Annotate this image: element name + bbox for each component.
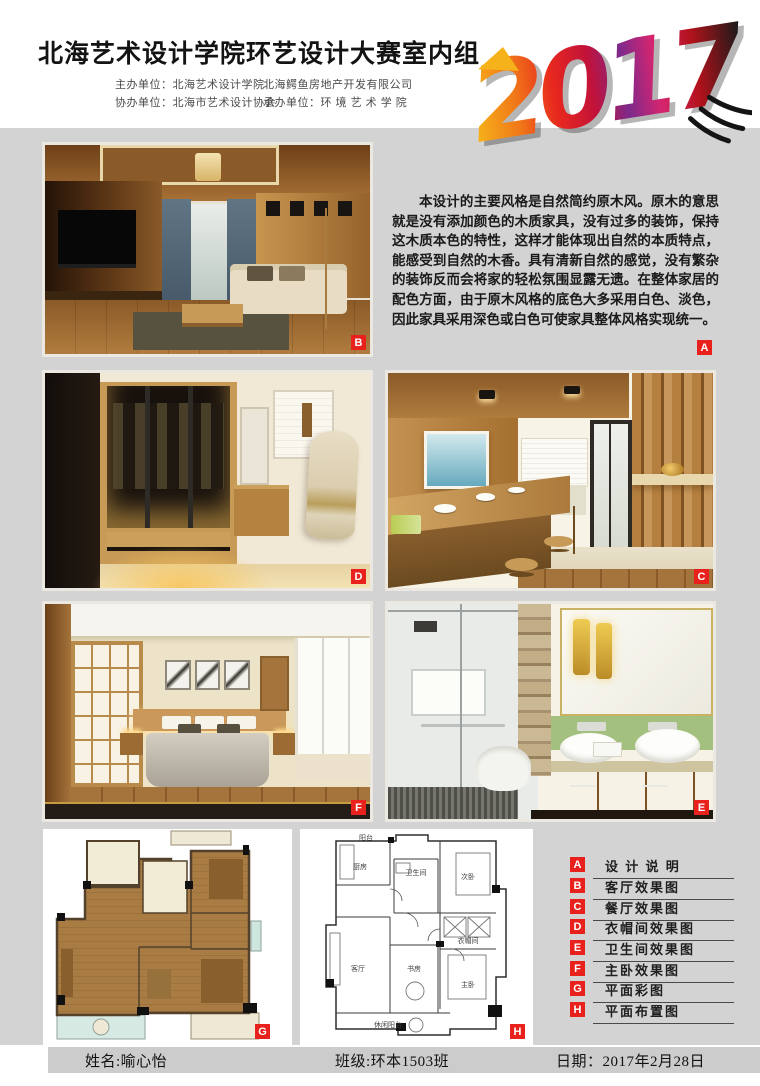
legend-row-g: G 平面彩图 — [570, 980, 734, 1000]
vanity-cabinet — [234, 485, 289, 537]
vessel-sink — [635, 729, 700, 763]
legend-row-b: B 客厅效果图 — [570, 877, 734, 897]
wood-floor-strip — [518, 569, 713, 588]
label-leisure-balcony: 休闲阳台 — [374, 1020, 402, 1029]
label-living-room: 客厅 — [351, 964, 365, 973]
faucet — [577, 722, 606, 731]
legend-badge-b: B — [570, 878, 585, 893]
legend-row-a: A 设 计 说 明 — [570, 856, 734, 876]
spotlight — [479, 390, 495, 399]
kitchen — [87, 841, 139, 885]
shower-head — [414, 621, 437, 632]
bedroom-photo: F — [42, 601, 373, 822]
floor-lamp — [325, 208, 327, 329]
legend-label-a: 设 计 说 明 — [593, 856, 734, 879]
bathroom — [143, 861, 187, 913]
shower-tile-floor — [388, 787, 518, 819]
legend-badge-e: E — [570, 940, 585, 955]
cup — [434, 504, 457, 513]
student-name: 姓名:喻心怡 — [85, 1050, 167, 1071]
cushion — [279, 266, 305, 281]
label-cloakroom: 衣帽间 — [458, 936, 479, 945]
cabinet-handle — [570, 785, 596, 787]
organizer-developer: 北海鳄鱼房地产开发有限公司 — [263, 76, 413, 92]
organizer-coorganizer: 协办单位：北海市艺术设计协会 — [115, 94, 263, 110]
year-2017-logo: 2017 2017 — [452, 14, 752, 154]
badge-a: A — [697, 340, 712, 355]
cushion — [247, 266, 273, 281]
chair-leg — [573, 506, 575, 553]
bed — [146, 733, 270, 787]
tub — [93, 1019, 109, 1035]
legend-badge-f: F — [570, 961, 585, 976]
badge-g: G — [255, 1024, 270, 1039]
tv-screen — [58, 210, 136, 268]
balcony-top-right — [171, 831, 231, 845]
window-seat — [295, 755, 370, 781]
counter-top — [551, 761, 714, 772]
legend-row-h: H 平面布置图 — [570, 1001, 734, 1021]
nightstand — [273, 733, 296, 755]
cloakroom-photo: D — [42, 370, 373, 591]
legend-label-b: 客厅效果图 — [593, 877, 734, 900]
legend-row-c: C 餐厅效果图 — [570, 898, 734, 918]
photo-frames — [266, 201, 357, 216]
stone-column — [518, 604, 551, 776]
wood-niche — [260, 656, 289, 712]
balcony-bottom-right — [191, 1013, 259, 1039]
layout-floor-plan-svg: 阳台 厨房 卫生间 次卧 衣帽间 主卧 客厅 书房 休闲阳台 — [300, 829, 533, 1045]
organizer-undertaker: 承办单位：环 境 艺 术 学 院 — [263, 94, 407, 110]
wood-cabinet-edge — [45, 604, 71, 819]
class-name: 班级:环本1503班 — [335, 1050, 449, 1071]
curtain-left — [162, 199, 191, 304]
label-study: 书房 — [407, 964, 421, 973]
legend-label-h: 平面布置图 — [593, 1001, 734, 1024]
nightstand — [120, 733, 143, 755]
legend-badge-d: D — [570, 919, 585, 934]
desk — [147, 969, 171, 999]
under-light-glow — [91, 545, 273, 588]
bed-secondary — [209, 859, 243, 899]
date: 日期：2017年2月28日 — [556, 1050, 705, 1071]
label-bathroom: 卫生间 — [406, 868, 427, 877]
toilet — [476, 746, 531, 791]
cabinet-handle — [642, 785, 668, 787]
bathroom-photo: E — [385, 601, 716, 822]
towel — [593, 742, 622, 757]
blue-artwork — [424, 431, 489, 489]
layout-floor-plan: 阳台 厨房 卫生间 次卧 衣帽间 主卧 客厅 书房 休闲阳台 H — [300, 829, 533, 1045]
design-description: 本设计的主要风格是自然简约原木风。原木的意思就是没有添加颜色的木质家具，没有过多… — [392, 192, 719, 329]
label-master-bedroom: 主卧 — [461, 980, 475, 989]
pendant-light — [596, 623, 612, 679]
coffee-table — [182, 304, 244, 327]
dining-room-photo: C — [385, 370, 716, 591]
bed-master — [201, 959, 243, 1003]
label-kitchen: 厨房 — [353, 862, 367, 871]
badge-b: B — [351, 335, 366, 350]
legend-row-e: E 卫生间效果图 — [570, 939, 734, 959]
mirror — [240, 407, 269, 484]
platform-base — [45, 802, 370, 819]
organizer-host: 主办单位：北海艺术设计学院 — [115, 76, 263, 92]
bay-window — [295, 638, 373, 754]
legend-row-d: D 衣帽间效果图 — [570, 918, 734, 938]
gold-kettle — [661, 463, 684, 476]
organizer-row-2: 协办单位：北海市艺术设计协会 承办单位：环 境 艺 术 学 院 — [115, 94, 407, 110]
coat-hook — [302, 403, 312, 437]
legend-badge-h: H — [570, 1002, 585, 1017]
side-window — [251, 921, 261, 951]
cup — [476, 493, 496, 501]
door-mullion — [609, 420, 611, 558]
ceiling-recess — [100, 145, 279, 185]
legend-badge-a: A — [570, 857, 585, 872]
legend-label-g: 平面彩图 — [593, 980, 734, 1003]
footer-bar: 姓名:喻心怡 班级:环本1503班 日期：2017年2月28日 — [48, 1047, 760, 1073]
living-room-photo: B — [42, 142, 373, 357]
page-title: 北海艺术设计学院环艺设计大赛室内组 — [38, 34, 480, 70]
glass-frame — [388, 610, 538, 612]
legend-badge-g: G — [570, 981, 585, 996]
ceiling — [45, 604, 370, 636]
poster-page: 北海艺术设计学院环艺设计大赛室内组 主办单位：北海艺术设计学院 北海鳄鱼房地产开… — [0, 0, 760, 1086]
legend-label-d: 衣帽间效果图 — [593, 918, 734, 941]
triptych-art — [165, 660, 250, 690]
label-balcony: 阳台 — [359, 833, 373, 842]
badge-e: E — [694, 800, 709, 815]
pendant-light — [573, 619, 589, 675]
window — [191, 204, 227, 300]
stool — [505, 558, 538, 571]
label-second-bedroom: 次卧 — [461, 872, 475, 881]
legend-badge-c: C — [570, 899, 585, 914]
green-boxes — [391, 515, 420, 534]
color-floor-plan: G — [43, 829, 292, 1045]
organizer-row-1: 主办单位：北海艺术设计学院 北海鳄鱼房地产开发有限公司 — [115, 76, 413, 92]
pendant-lamp — [195, 153, 221, 180]
door-mullions — [107, 386, 231, 528]
badge-c: C — [694, 569, 709, 584]
legend-label-e: 卫生间效果图 — [593, 939, 734, 962]
sofa — [61, 949, 73, 997]
base-shadow — [531, 810, 713, 819]
badge-d: D — [351, 569, 366, 584]
badge-h: H — [510, 1024, 525, 1039]
spotlight — [564, 386, 580, 395]
legend-row-f: F 主卧效果图 — [570, 960, 734, 980]
grab-bar — [421, 724, 506, 727]
wood-ceiling — [388, 373, 629, 418]
hanging-robe — [305, 430, 359, 540]
color-floor-plan-svg — [43, 829, 292, 1045]
badge-f: F — [351, 800, 366, 815]
shower-window — [411, 669, 486, 716]
